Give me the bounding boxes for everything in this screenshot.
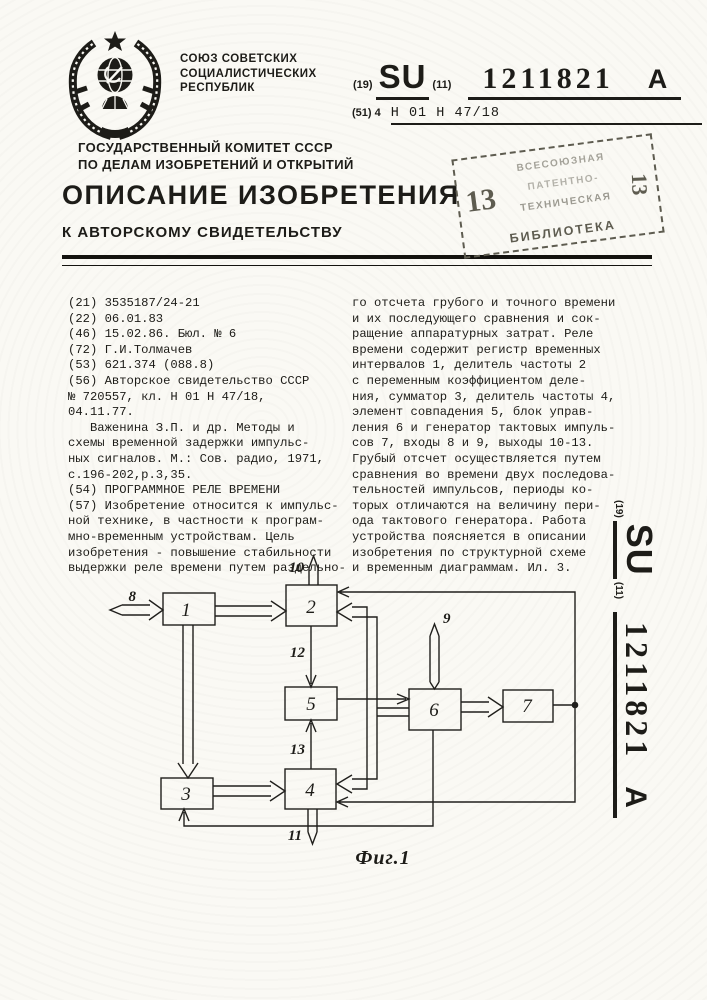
- document-subtitle: К АВТОРСКОМУ СВИДЕТЕЛЬСТВУ: [62, 224, 343, 241]
- block-4-label: 4: [305, 780, 315, 801]
- pub-number: 1211821: [482, 62, 613, 96]
- ipc-value: H 01 H 47/18: [391, 106, 702, 125]
- arrow-12-2-to-5: [306, 626, 316, 687]
- block-3-label: 3: [180, 784, 191, 805]
- input-8-arrow: [110, 600, 163, 620]
- arrow-3-to-4: [213, 781, 285, 801]
- country-code: SU: [376, 58, 430, 100]
- stamp-line-3: ТЕХНИЧЕСКАЯ: [508, 189, 624, 215]
- pub-number-underlined: 1211821 A: [468, 62, 681, 100]
- pub-kind: A: [648, 64, 668, 95]
- output-10-arrow: [309, 556, 318, 585]
- port-13-label: 13: [290, 742, 306, 758]
- feedback-7-to-2: [338, 587, 575, 705]
- input-9-arrow: [430, 624, 439, 689]
- bus-6-to-2-and-4: [337, 603, 409, 793]
- sidebar-code-19: (19): [613, 500, 624, 518]
- port-9-label: 9: [443, 611, 451, 627]
- arrow-5-to-6: [337, 694, 409, 704]
- arrow-1-to-2: [215, 601, 286, 621]
- port-12-label: 12: [290, 645, 306, 661]
- block-6-label: 6: [429, 700, 439, 721]
- block-5-label: 5: [306, 694, 316, 715]
- ussr-coat-of-arms: [64, 30, 166, 140]
- junction-dot: [572, 702, 577, 707]
- emblem-star: [104, 31, 126, 51]
- union-name: СОЮЗ СОВЕТСКИХ СОЦИАЛИСТИЧЕСКИХ РЕСПУБЛИ…: [180, 52, 317, 96]
- horizontal-rule: [62, 255, 652, 266]
- publication-number-header: (19) SU (11) 1211821 A: [350, 58, 681, 100]
- block-1-label: 1: [181, 600, 191, 621]
- sidebar-code-11: (11): [613, 582, 624, 599]
- patent-document-page: СОЮЗ СОВЕТСКИХ СОЦИАЛИСТИЧЕСКИХ РЕСПУБЛИ…: [0, 0, 707, 1000]
- library-stamp: 13 ВСЕСОЮЗНАЯ ПАТЕНТНО- ТЕХНИЧЕСКАЯ 13 Б…: [451, 133, 664, 259]
- stamp-number-left: 13: [464, 182, 498, 220]
- feedback-7-to-4: [337, 705, 575, 807]
- figure-1-block-diagram: 1 2 3 4 5 6 7 8 9 10 11 12 13 Фиг.1: [60, 548, 605, 880]
- block-7-label: 7: [522, 696, 533, 717]
- bibliographic-column: (21) 3535187/24-21 (22) 06.01.83 (46) 15…: [68, 296, 354, 577]
- port-10-label: 10: [289, 560, 305, 576]
- committee-name: ГОСУДАРСТВЕННЫЙ КОМИТЕТ СССР ПО ДЕЛАМ ИЗ…: [78, 140, 354, 173]
- line-6-to-3: [179, 730, 433, 826]
- code-11: (11): [432, 79, 451, 91]
- port-8-label: 8: [129, 589, 137, 605]
- sidebar-number-underlined: 1211821 A: [613, 612, 655, 818]
- arrow-1-to-3: [178, 625, 198, 778]
- arrow-6-to-7: [461, 697, 503, 717]
- abstract-column: го отсчета грубого и точного времени и и…: [352, 296, 648, 577]
- sidebar-publication-number: (19) SU (11) 1211821 A: [613, 497, 657, 797]
- ipc-classification: (51) 4 H 01 H 47/18: [352, 106, 702, 125]
- sidebar-pub-number: 1211821: [618, 622, 655, 760]
- code-19: (19): [353, 79, 373, 91]
- arrow-13-4-to-5: [306, 720, 316, 769]
- figure-caption: Фиг.1: [355, 847, 410, 869]
- document-title: ОПИСАНИЕ ИЗОБРЕТЕНИЯ: [62, 180, 460, 211]
- ipc-prefix: (51) 4: [352, 107, 381, 119]
- sidebar-country-code: SU: [613, 521, 660, 579]
- port-11-label: 11: [288, 828, 302, 844]
- sidebar-pub-kind: A: [618, 786, 652, 808]
- stamp-number-right: 13: [626, 173, 653, 196]
- stamp-bottom-line: БИБЛИОТЕКА: [493, 216, 632, 248]
- block-2-label: 2: [306, 597, 316, 618]
